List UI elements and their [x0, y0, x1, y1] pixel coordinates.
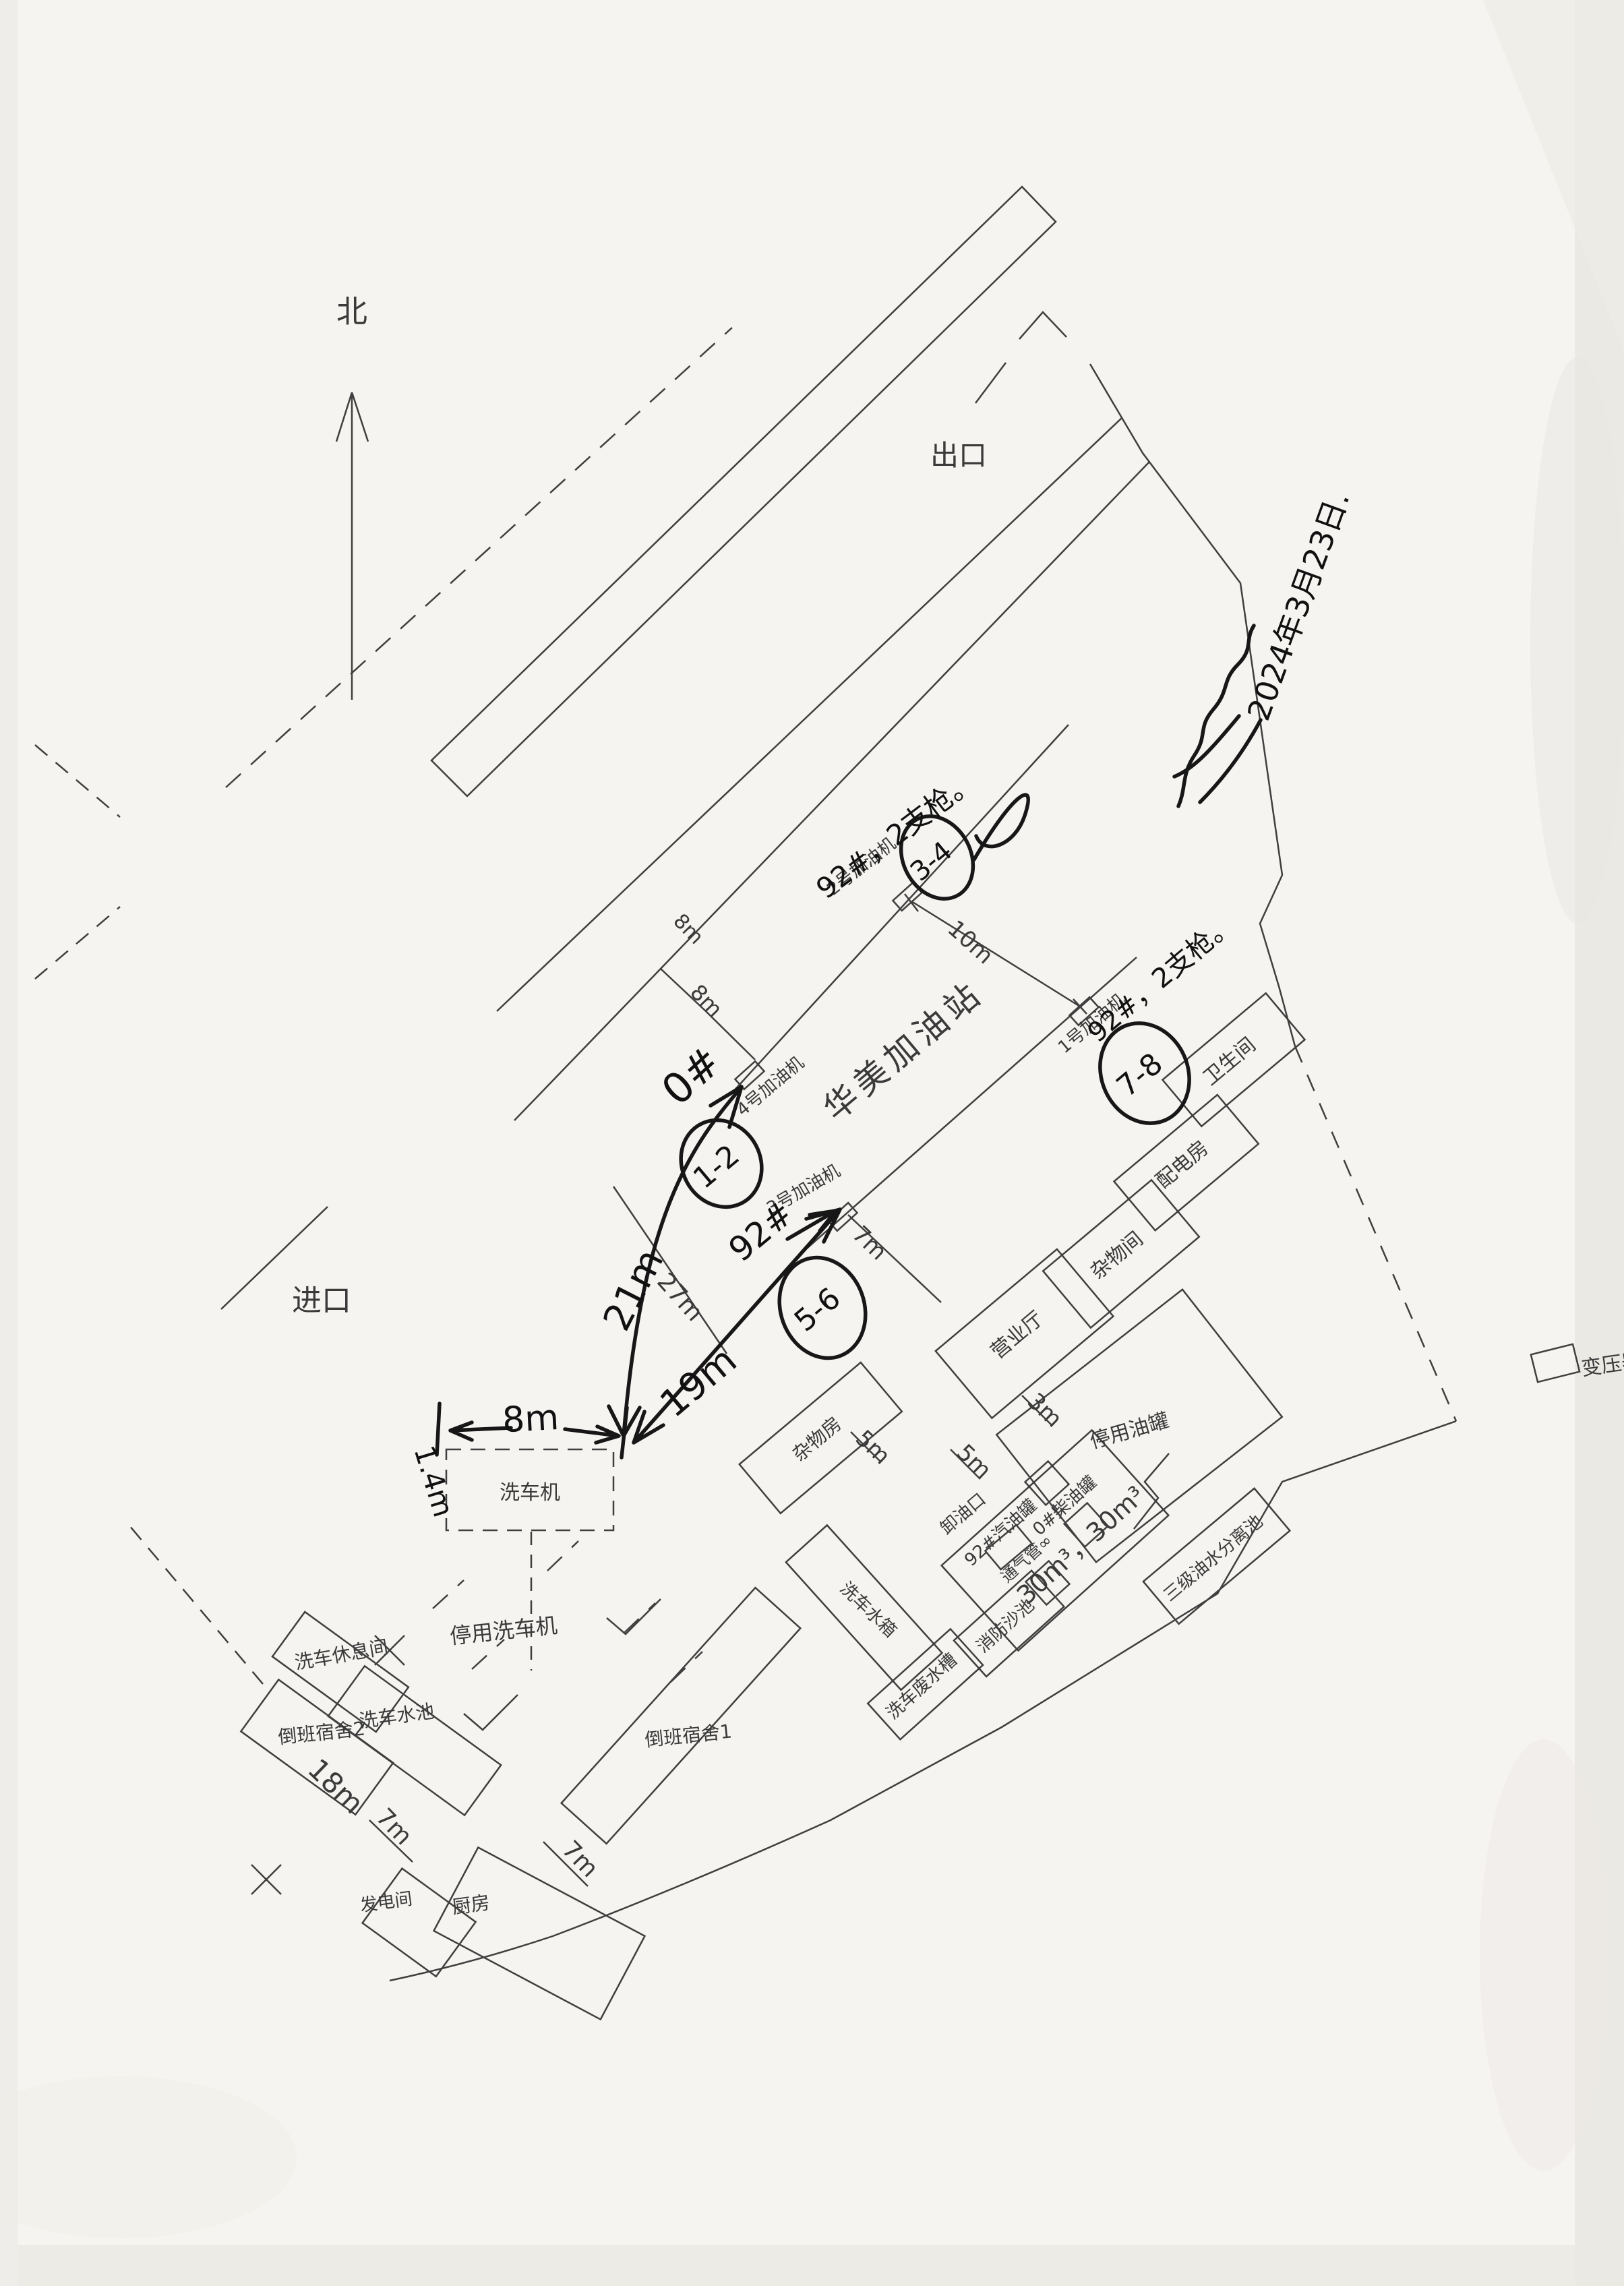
exit-label: 出口	[930, 439, 987, 472]
washer-label: 洗车机	[500, 1481, 560, 1505]
hand-8m: 8m	[502, 1397, 560, 1441]
site-plan-canvas: 北	[0, 0, 1624, 2286]
entrance-label: 进口	[292, 1284, 351, 1318]
north-label: 北	[336, 293, 367, 330]
scanned-site-plan: 北	[0, 0, 1624, 2286]
paper-shading	[0, 0, 1624, 2286]
